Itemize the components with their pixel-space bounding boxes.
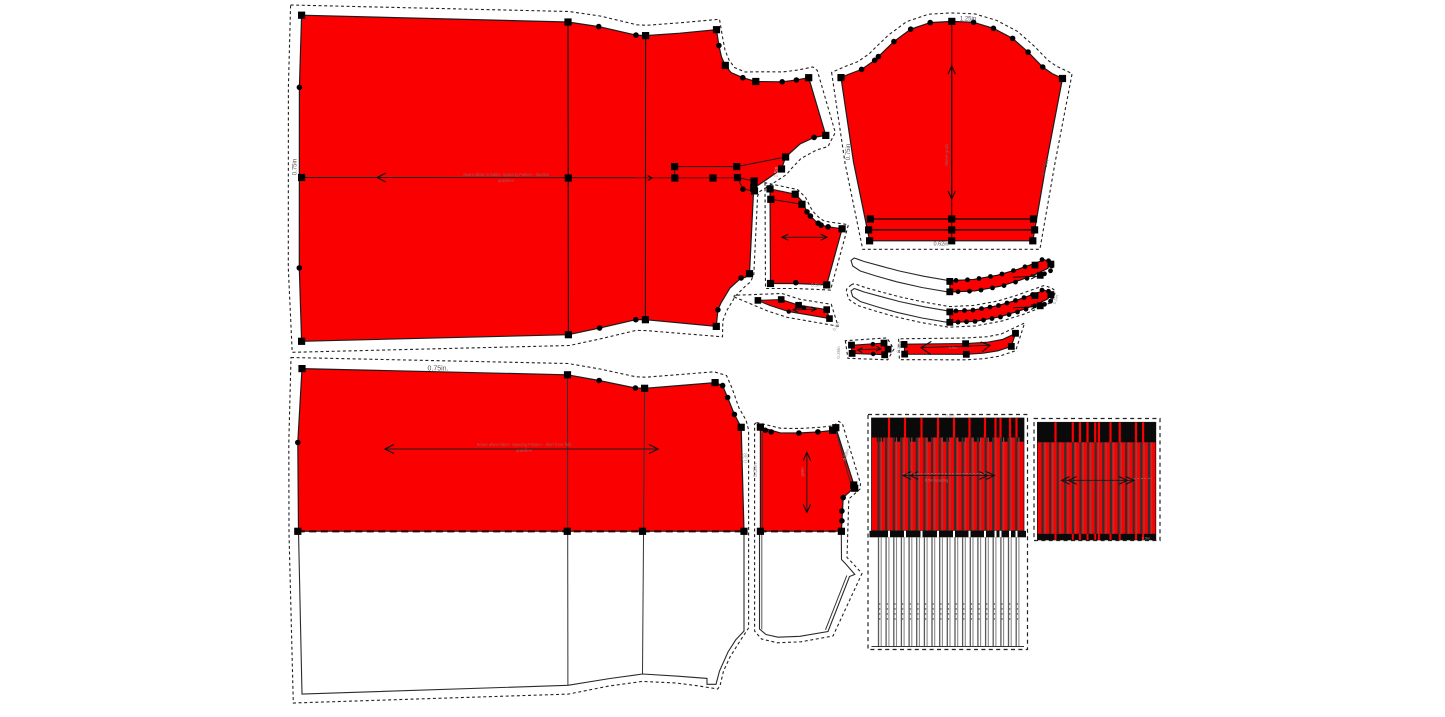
svg-text:sleeve grain: sleeve grain <box>944 143 949 166</box>
svg-text:1.25in: 1.25in <box>960 17 976 23</box>
svg-text:0.5in: 0.5in <box>946 413 955 418</box>
svg-text:0.75in.: 0.75in. <box>427 366 448 373</box>
svg-text:0.38in: 0.38in <box>753 463 759 477</box>
svg-text:0.5in: 0.5in <box>774 166 780 177</box>
svg-text:0.38in: 0.38in <box>836 346 841 359</box>
svg-text:0.5in: 0.5in <box>1142 536 1151 541</box>
svg-text:grain: grain <box>800 468 805 477</box>
svg-text:Seam allow in fabric: Spacing: Seam allow in fabric: Spacing Pattern - … <box>463 172 550 177</box>
svg-text:0.75in: 0.75in <box>846 144 852 160</box>
svg-text:grainline: grainline <box>516 448 533 453</box>
svg-text:grainline: grainline <box>498 178 515 183</box>
svg-text:Seam allow fabric: Spacing Pat: Seam allow fabric: Spacing Pattern - Ski… <box>477 442 572 447</box>
svg-text:0.5in: 0.5in <box>811 283 821 288</box>
svg-text:0.38: 0.38 <box>744 453 750 463</box>
svg-text:0.75in: 0.75in <box>293 159 299 175</box>
svg-text:0.5in spacing: 0.5in spacing <box>925 478 949 483</box>
svg-text:0.5in: 0.5in <box>949 345 958 350</box>
svg-text:0.62in: 0.62in <box>934 242 949 248</box>
